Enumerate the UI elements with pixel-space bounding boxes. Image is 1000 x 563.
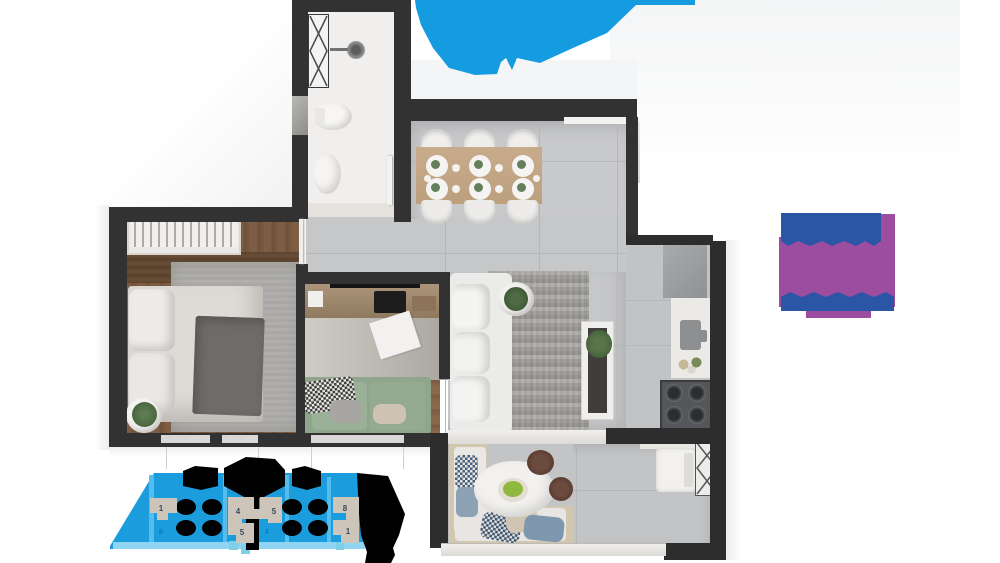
svg-text:5: 5: [272, 507, 277, 516]
svg-text:4: 4: [236, 507, 241, 516]
svg-text:4: 4: [265, 529, 269, 536]
svg-text:8: 8: [159, 529, 163, 536]
svg-text:8: 8: [343, 504, 348, 513]
svg-text:1: 1: [159, 504, 164, 513]
svg-text:5: 5: [240, 528, 245, 537]
svg-text:1: 1: [346, 527, 351, 536]
